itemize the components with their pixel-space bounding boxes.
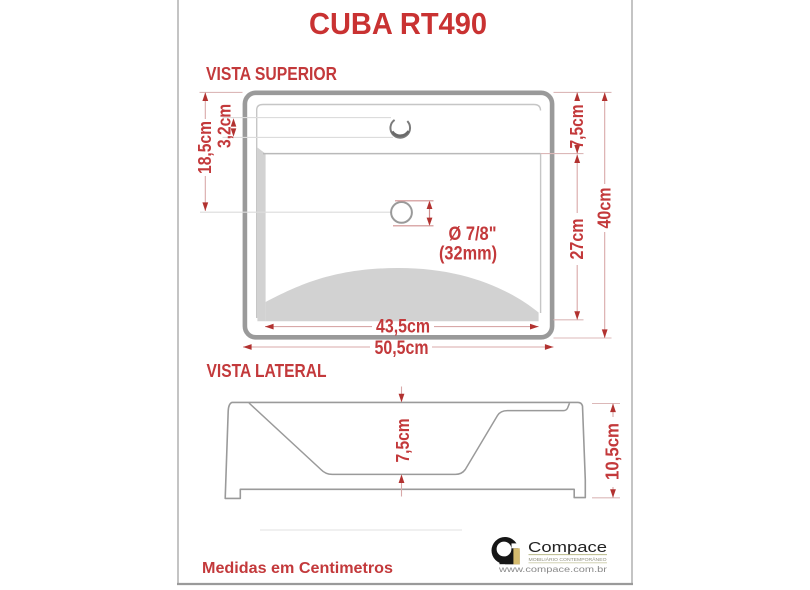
svg-text:MOBILIÁRIO CONTEMPORÂNEO: MOBILIÁRIO CONTEMPORÂNEO [529, 556, 607, 563]
svg-text:Ø 7/8": Ø 7/8" [449, 224, 497, 245]
svg-text:40cm: 40cm [595, 188, 615, 229]
svg-text:18,5cm: 18,5cm [195, 121, 215, 174]
svg-text:(32mm): (32mm) [439, 244, 497, 265]
svg-text:27cm: 27cm [567, 219, 587, 260]
svg-text:50,5cm: 50,5cm [375, 338, 429, 359]
svg-text:10,5cm: 10,5cm [603, 423, 623, 480]
svg-text:3,2cm: 3,2cm [215, 104, 235, 148]
svg-text:Medidas em Centimetros: Medidas em Centimetros [202, 560, 393, 577]
svg-text:www.compace.com.br: www.compace.com.br [498, 564, 607, 574]
svg-text:43,5cm: 43,5cm [376, 316, 430, 337]
svg-text:VISTA LATERAL: VISTA LATERAL [207, 360, 327, 381]
svg-text:VISTA SUPERIOR: VISTA SUPERIOR [206, 63, 337, 84]
svg-text:7,5cm: 7,5cm [567, 105, 587, 149]
svg-text:Compace: Compace [528, 540, 607, 556]
svg-text:7,5cm: 7,5cm [393, 419, 413, 463]
svg-text:CUBA RT490: CUBA RT490 [309, 6, 487, 41]
